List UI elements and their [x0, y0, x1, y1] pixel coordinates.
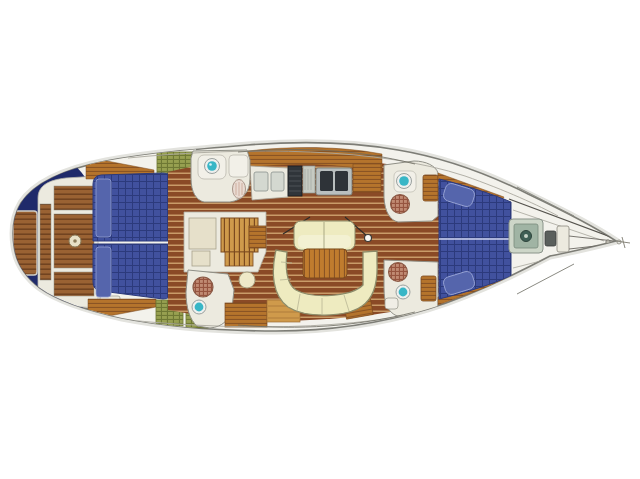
steering-pedestal-hub — [73, 239, 77, 243]
galley-sink-1 — [254, 172, 268, 191]
galley-sink-2 — [271, 172, 284, 191]
fwd-head-port-sink — [399, 176, 409, 186]
cockpit-aft-seat — [40, 204, 51, 280]
cockpit-bench-port — [54, 186, 94, 210]
aft-head-port — [191, 150, 250, 202]
salon-table — [303, 249, 347, 278]
salon-pouf — [239, 272, 255, 288]
cockpit-bench-starboard — [54, 272, 94, 296]
chain-stopper — [545, 231, 556, 246]
fwd-head-starboard-sink — [399, 288, 408, 297]
galley-cabinet-aft — [249, 226, 266, 248]
aft-head-starboard-sink — [195, 303, 204, 312]
fridge-lid-1 — [320, 171, 333, 191]
shower-grate-fwd-starboard — [389, 263, 408, 282]
fwd-head-port-bench — [423, 175, 438, 201]
aft-head-port-shelf — [229, 155, 248, 177]
nav-locker — [192, 251, 210, 266]
aft-berth-starboard-pillow — [96, 247, 111, 297]
nav-seat — [189, 218, 216, 249]
salon-bench-cushion — [298, 235, 351, 248]
locker-bottom-dark — [225, 303, 267, 327]
mast-post — [365, 235, 372, 242]
aft-berth-port-pillow — [96, 179, 111, 237]
companionway-step-lower — [225, 252, 253, 266]
anchor-well — [557, 226, 569, 252]
fwd-head-starboard-toilet — [385, 298, 398, 309]
fwd-head-port — [384, 161, 438, 222]
aft-head-port-sink — [207, 161, 217, 171]
windlass-gypsy — [524, 234, 528, 238]
galley-locker-fwd — [353, 164, 381, 192]
yacht-layout-plan — [0, 0, 640, 479]
fwd-head-starboard-bench — [421, 276, 436, 301]
aft-head-port-sink-highlight — [209, 163, 212, 166]
shower-grate-fwd-port — [391, 195, 410, 214]
shower-grate-aft — [193, 277, 213, 297]
yacht-floorplan-image — [0, 0, 640, 479]
fridge-lid-2 — [335, 171, 348, 191]
